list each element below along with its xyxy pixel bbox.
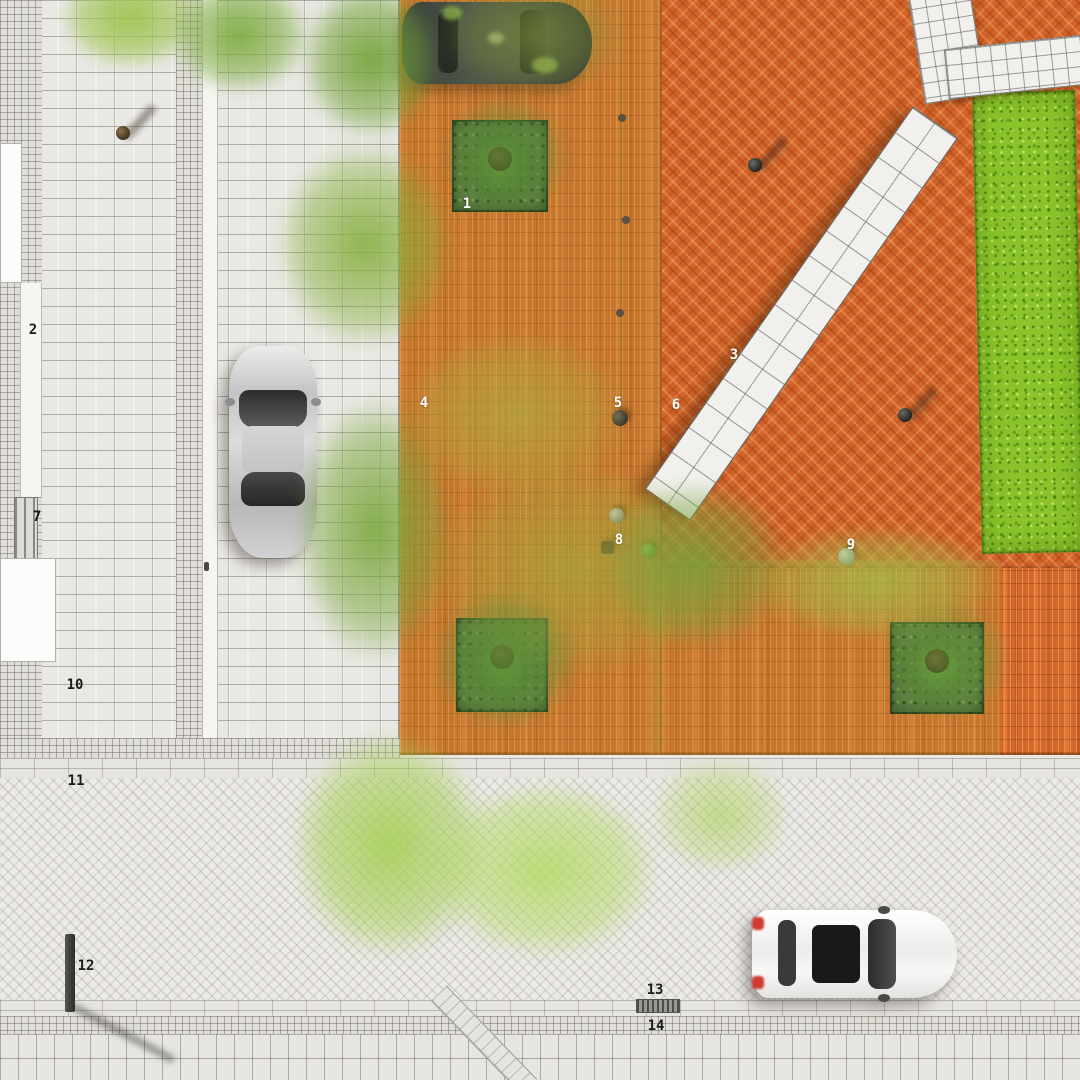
marker-12: 12: [78, 959, 95, 973]
building-footprint-b: [0, 558, 56, 662]
building-footprint-a: [0, 143, 22, 283]
marker-10: 10: [67, 678, 84, 692]
tree-canopy: [430, 780, 660, 960]
tree-canopy: [880, 600, 1010, 720]
car-mirror: [878, 994, 890, 1002]
tree-canopy: [430, 590, 580, 730]
marker-7: 7: [33, 510, 41, 524]
taillight: [752, 976, 764, 989]
marker-1: 1: [463, 197, 471, 211]
light-pole: [65, 934, 75, 1012]
marker-4: 4: [420, 396, 428, 410]
car-mirror: [311, 398, 321, 406]
street-south-brick-band: [0, 1000, 1080, 1016]
stairs-west: [14, 497, 38, 559]
building-edge-strip: [20, 283, 42, 497]
tree-canopy: [275, 140, 455, 350]
pedestrian-body: [898, 408, 912, 422]
street-south-cobble-band: [0, 1016, 1080, 1034]
pedestrian: [116, 126, 132, 142]
pedestrian-body: [116, 126, 130, 140]
marker-6: 6: [672, 398, 680, 412]
bollard-dot: [622, 216, 630, 224]
marker-9: 9: [847, 538, 855, 552]
pedestrian: [748, 158, 764, 174]
lawn: [972, 90, 1080, 554]
marker-8: 8: [615, 533, 623, 547]
marker-2: 2: [29, 323, 37, 337]
tree-canopy: [650, 755, 790, 875]
car-mirror: [225, 398, 235, 406]
car-mirror: [878, 906, 890, 914]
car-windshield: [868, 919, 896, 989]
marker-5: 5: [614, 396, 622, 410]
paving-band-strip: [202, 0, 218, 740]
site-plan-canvas: 1 2 3 4 5 6 7 8 9 10 11 12 13 14: [0, 0, 1080, 1080]
cobble-strip-mid: [176, 0, 202, 740]
taillight: [752, 917, 764, 930]
bollard-dot: [618, 114, 626, 122]
car-windshield: [239, 390, 307, 428]
car-white-driving: [752, 910, 957, 998]
marker-3: 3: [730, 348, 738, 362]
car-rear-window: [778, 920, 796, 986]
pedestrian: [898, 408, 914, 424]
car-roof: [242, 426, 304, 474]
bollard-sidewalk: [204, 562, 209, 571]
pedestrian-body: [748, 158, 762, 172]
tree-canopy: [440, 95, 570, 215]
marker-14: 14: [648, 1019, 665, 1033]
car-rear-window: [241, 472, 305, 506]
bollard-dot: [616, 309, 624, 317]
tree-canopy: [295, 395, 455, 665]
drainage-grate: [636, 999, 680, 1013]
marker-11: 11: [68, 774, 85, 788]
car-sunroof: [812, 925, 860, 983]
marker-13: 13: [647, 983, 664, 997]
curb-brick-band: [0, 758, 1080, 778]
